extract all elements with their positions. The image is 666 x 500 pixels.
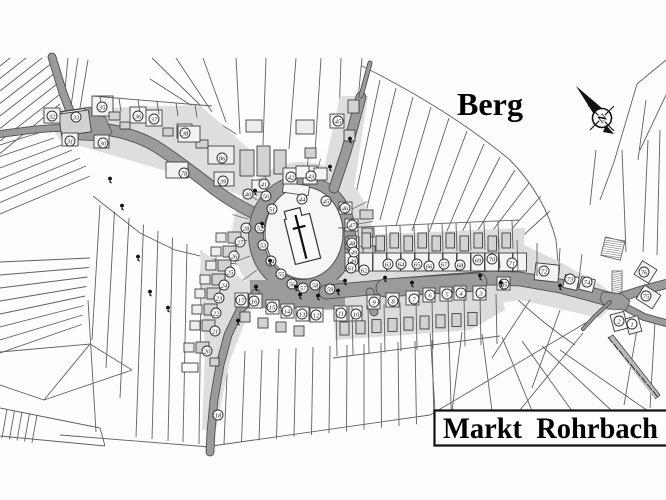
svg-text:49: 49 — [351, 249, 358, 256]
svg-text:67: 67 — [441, 261, 448, 268]
svg-text:37: 37 — [150, 116, 158, 123]
svg-text:13: 13 — [299, 311, 306, 318]
svg-text:53: 53 — [260, 242, 267, 249]
svg-text:42: 42 — [288, 174, 295, 181]
svg-text:25: 25 — [227, 269, 234, 276]
svg-text:74: 74 — [584, 279, 591, 286]
svg-text:52: 52 — [257, 225, 264, 232]
svg-text:41: 41 — [261, 181, 268, 188]
svg-text:70: 70 — [489, 256, 496, 263]
svg-text:11: 11 — [338, 310, 344, 317]
svg-text:31: 31 — [66, 138, 74, 145]
svg-text:36: 36 — [134, 113, 142, 120]
svg-text:23: 23 — [216, 295, 223, 302]
svg-text:73: 73 — [567, 276, 574, 283]
svg-text:47: 47 — [349, 222, 356, 229]
svg-text:39: 39 — [219, 178, 227, 185]
svg-text:28: 28 — [243, 225, 250, 232]
svg-text:86: 86 — [219, 155, 226, 162]
svg-text:69: 69 — [475, 257, 482, 264]
svg-text:72: 72 — [541, 268, 548, 275]
svg-text:46: 46 — [342, 205, 349, 212]
svg-text:17: 17 — [238, 297, 245, 304]
svg-text:24: 24 — [221, 282, 228, 289]
svg-text:68: 68 — [457, 262, 464, 269]
svg-text:40: 40 — [245, 191, 252, 198]
svg-text:Berg: Berg — [457, 86, 523, 122]
svg-text:51: 51 — [269, 206, 276, 213]
svg-text:55: 55 — [278, 271, 285, 278]
svg-text:45: 45 — [323, 198, 330, 205]
svg-text:20: 20 — [204, 348, 211, 355]
svg-text:35: 35 — [98, 104, 106, 111]
svg-text:43: 43 — [308, 173, 315, 180]
svg-text:78: 78 — [181, 170, 188, 177]
svg-text:63: 63 — [385, 261, 392, 268]
svg-text:21: 21 — [212, 328, 219, 335]
svg-text:32: 32 — [48, 113, 56, 120]
svg-text:64: 64 — [398, 261, 405, 268]
svg-text:61: 61 — [348, 265, 355, 272]
svg-text:27: 27 — [237, 239, 244, 246]
svg-text:14: 14 — [284, 308, 291, 315]
svg-text:16: 16 — [251, 298, 258, 305]
svg-text:59: 59 — [327, 286, 334, 293]
svg-text:10: 10 — [353, 311, 360, 318]
svg-text:65: 65 — [414, 261, 421, 268]
svg-text:75: 75 — [643, 293, 650, 300]
svg-text:45: 45 — [335, 118, 342, 125]
svg-text:38: 38 — [181, 130, 189, 137]
svg-text:58: 58 — [312, 282, 319, 289]
svg-text:66: 66 — [426, 263, 433, 270]
svg-text:30: 30 — [99, 140, 107, 147]
svg-text:57: 57 — [300, 285, 307, 292]
svg-text:71: 71 — [509, 260, 516, 267]
svg-text:15: 15 — [269, 304, 276, 311]
svg-text:Markt Rohrbach: Markt Rohrbach — [443, 412, 658, 445]
svg-text:1: 1 — [630, 321, 633, 328]
svg-text:26: 26 — [231, 253, 238, 260]
svg-text:3: 3 — [478, 290, 483, 297]
svg-text:50: 50 — [263, 193, 270, 200]
svg-text:12: 12 — [313, 312, 320, 319]
svg-text:76: 76 — [641, 269, 648, 276]
svg-text:22: 22 — [213, 310, 220, 317]
svg-text:48: 48 — [349, 240, 356, 247]
svg-text:44: 44 — [299, 196, 306, 203]
svg-text:33: 33 — [72, 114, 80, 121]
svg-text:18: 18 — [215, 412, 222, 419]
svg-text:62: 62 — [361, 267, 368, 274]
